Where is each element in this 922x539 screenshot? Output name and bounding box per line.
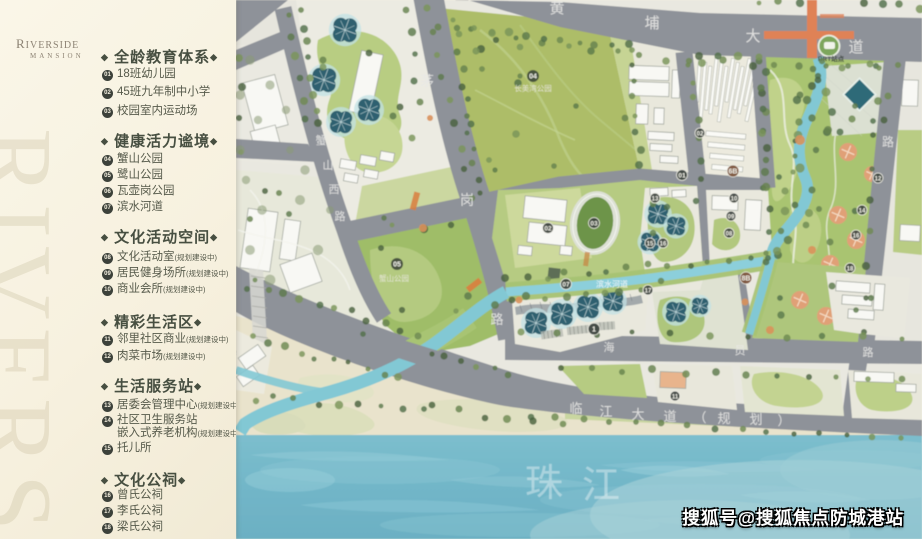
svg-text:17: 17 <box>645 289 652 295</box>
svg-text:珠: 珠 <box>525 463 563 505</box>
svg-text:14: 14 <box>859 209 866 215</box>
svg-text:西: 西 <box>329 184 340 196</box>
svg-text:山: 山 <box>323 159 334 172</box>
svg-text:13: 13 <box>652 197 659 203</box>
svg-text:江: 江 <box>582 465 620 507</box>
svg-text:（: （ <box>693 410 706 425</box>
svg-text:员: 员 <box>735 344 746 357</box>
svg-text:03: 03 <box>590 221 598 228</box>
svg-text:6B: 6B <box>729 169 738 176</box>
svg-text:05: 05 <box>393 262 401 269</box>
svg-text:蟹: 蟹 <box>316 133 327 147</box>
svg-text:16: 16 <box>853 234 860 240</box>
svg-text:茅: 茅 <box>420 73 434 89</box>
svg-text:16: 16 <box>660 242 667 248</box>
svg-text:07: 07 <box>562 282 570 289</box>
svg-text:路: 路 <box>863 346 874 359</box>
svg-text:规: 规 <box>717 411 730 426</box>
svg-text:1: 1 <box>592 327 596 334</box>
svg-text:10: 10 <box>731 197 738 203</box>
svg-text:道: 道 <box>663 409 676 424</box>
svg-text:大: 大 <box>631 407 644 422</box>
svg-text:长美湾公园: 长美湾公园 <box>514 83 552 93</box>
svg-text:08: 08 <box>726 232 733 238</box>
svg-text:路: 路 <box>490 312 503 327</box>
svg-text:路: 路 <box>335 210 346 223</box>
svg-text:04: 04 <box>529 74 537 81</box>
svg-text:02: 02 <box>544 226 552 233</box>
svg-text:8B: 8B <box>742 276 751 283</box>
svg-text:江: 江 <box>599 404 612 419</box>
svg-text:蟹山公园: 蟹山公园 <box>379 273 409 283</box>
svg-text:09: 09 <box>728 215 735 221</box>
svg-text:道: 道 <box>848 39 863 56</box>
svg-text:埔: 埔 <box>644 15 659 32</box>
svg-text:黄: 黄 <box>549 0 564 17</box>
svg-text:滨水河道: 滨水河道 <box>596 279 628 289</box>
svg-text:岗: 岗 <box>460 192 474 208</box>
svg-text:海: 海 <box>604 340 615 354</box>
svg-text:）: ） <box>777 413 790 428</box>
svg-text:15: 15 <box>647 242 654 248</box>
svg-text:划: 划 <box>749 412 762 427</box>
svg-text:临: 临 <box>569 401 582 416</box>
svg-text:12: 12 <box>875 177 882 183</box>
svg-text:01: 01 <box>678 173 686 180</box>
svg-text:02: 02 <box>697 132 704 138</box>
svg-text:18: 18 <box>847 267 854 273</box>
svg-text:11: 11 <box>672 395 679 401</box>
svg-text:路: 路 <box>882 134 894 149</box>
svg-text:大: 大 <box>745 28 760 45</box>
